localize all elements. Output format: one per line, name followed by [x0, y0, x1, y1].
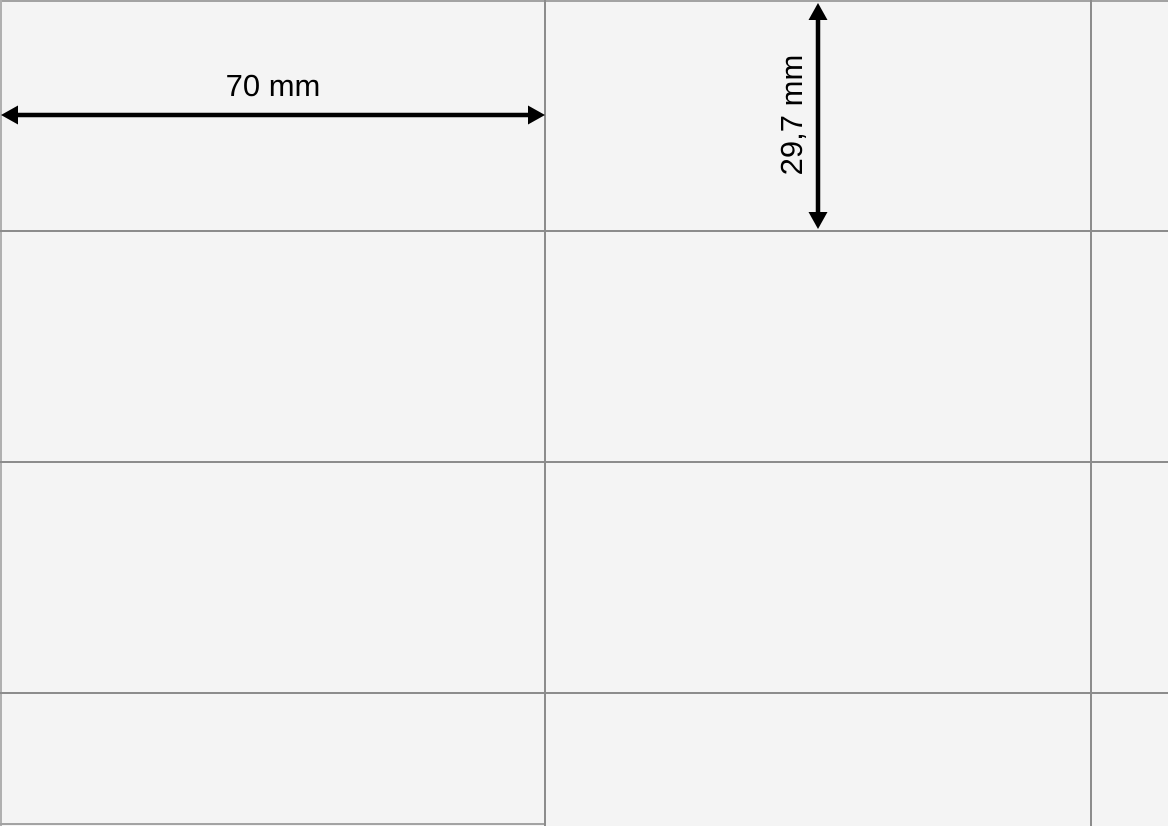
grid-line-horizontal-3 — [0, 692, 1168, 694]
grid-line-horizontal-2 — [0, 461, 1168, 463]
grid-line-vertical-2 — [1090, 0, 1092, 826]
grid-line-horizontal-1 — [0, 230, 1168, 232]
height-dimension-label: 29,7 mm — [774, 54, 810, 176]
sheet-bottom-border — [0, 823, 546, 825]
label-sheet-diagram: 70 mm 29,7 mm — [0, 0, 1168, 826]
width-dimension-label: 70 mm — [0, 68, 546, 104]
sheet-top-border — [0, 0, 1168, 2]
